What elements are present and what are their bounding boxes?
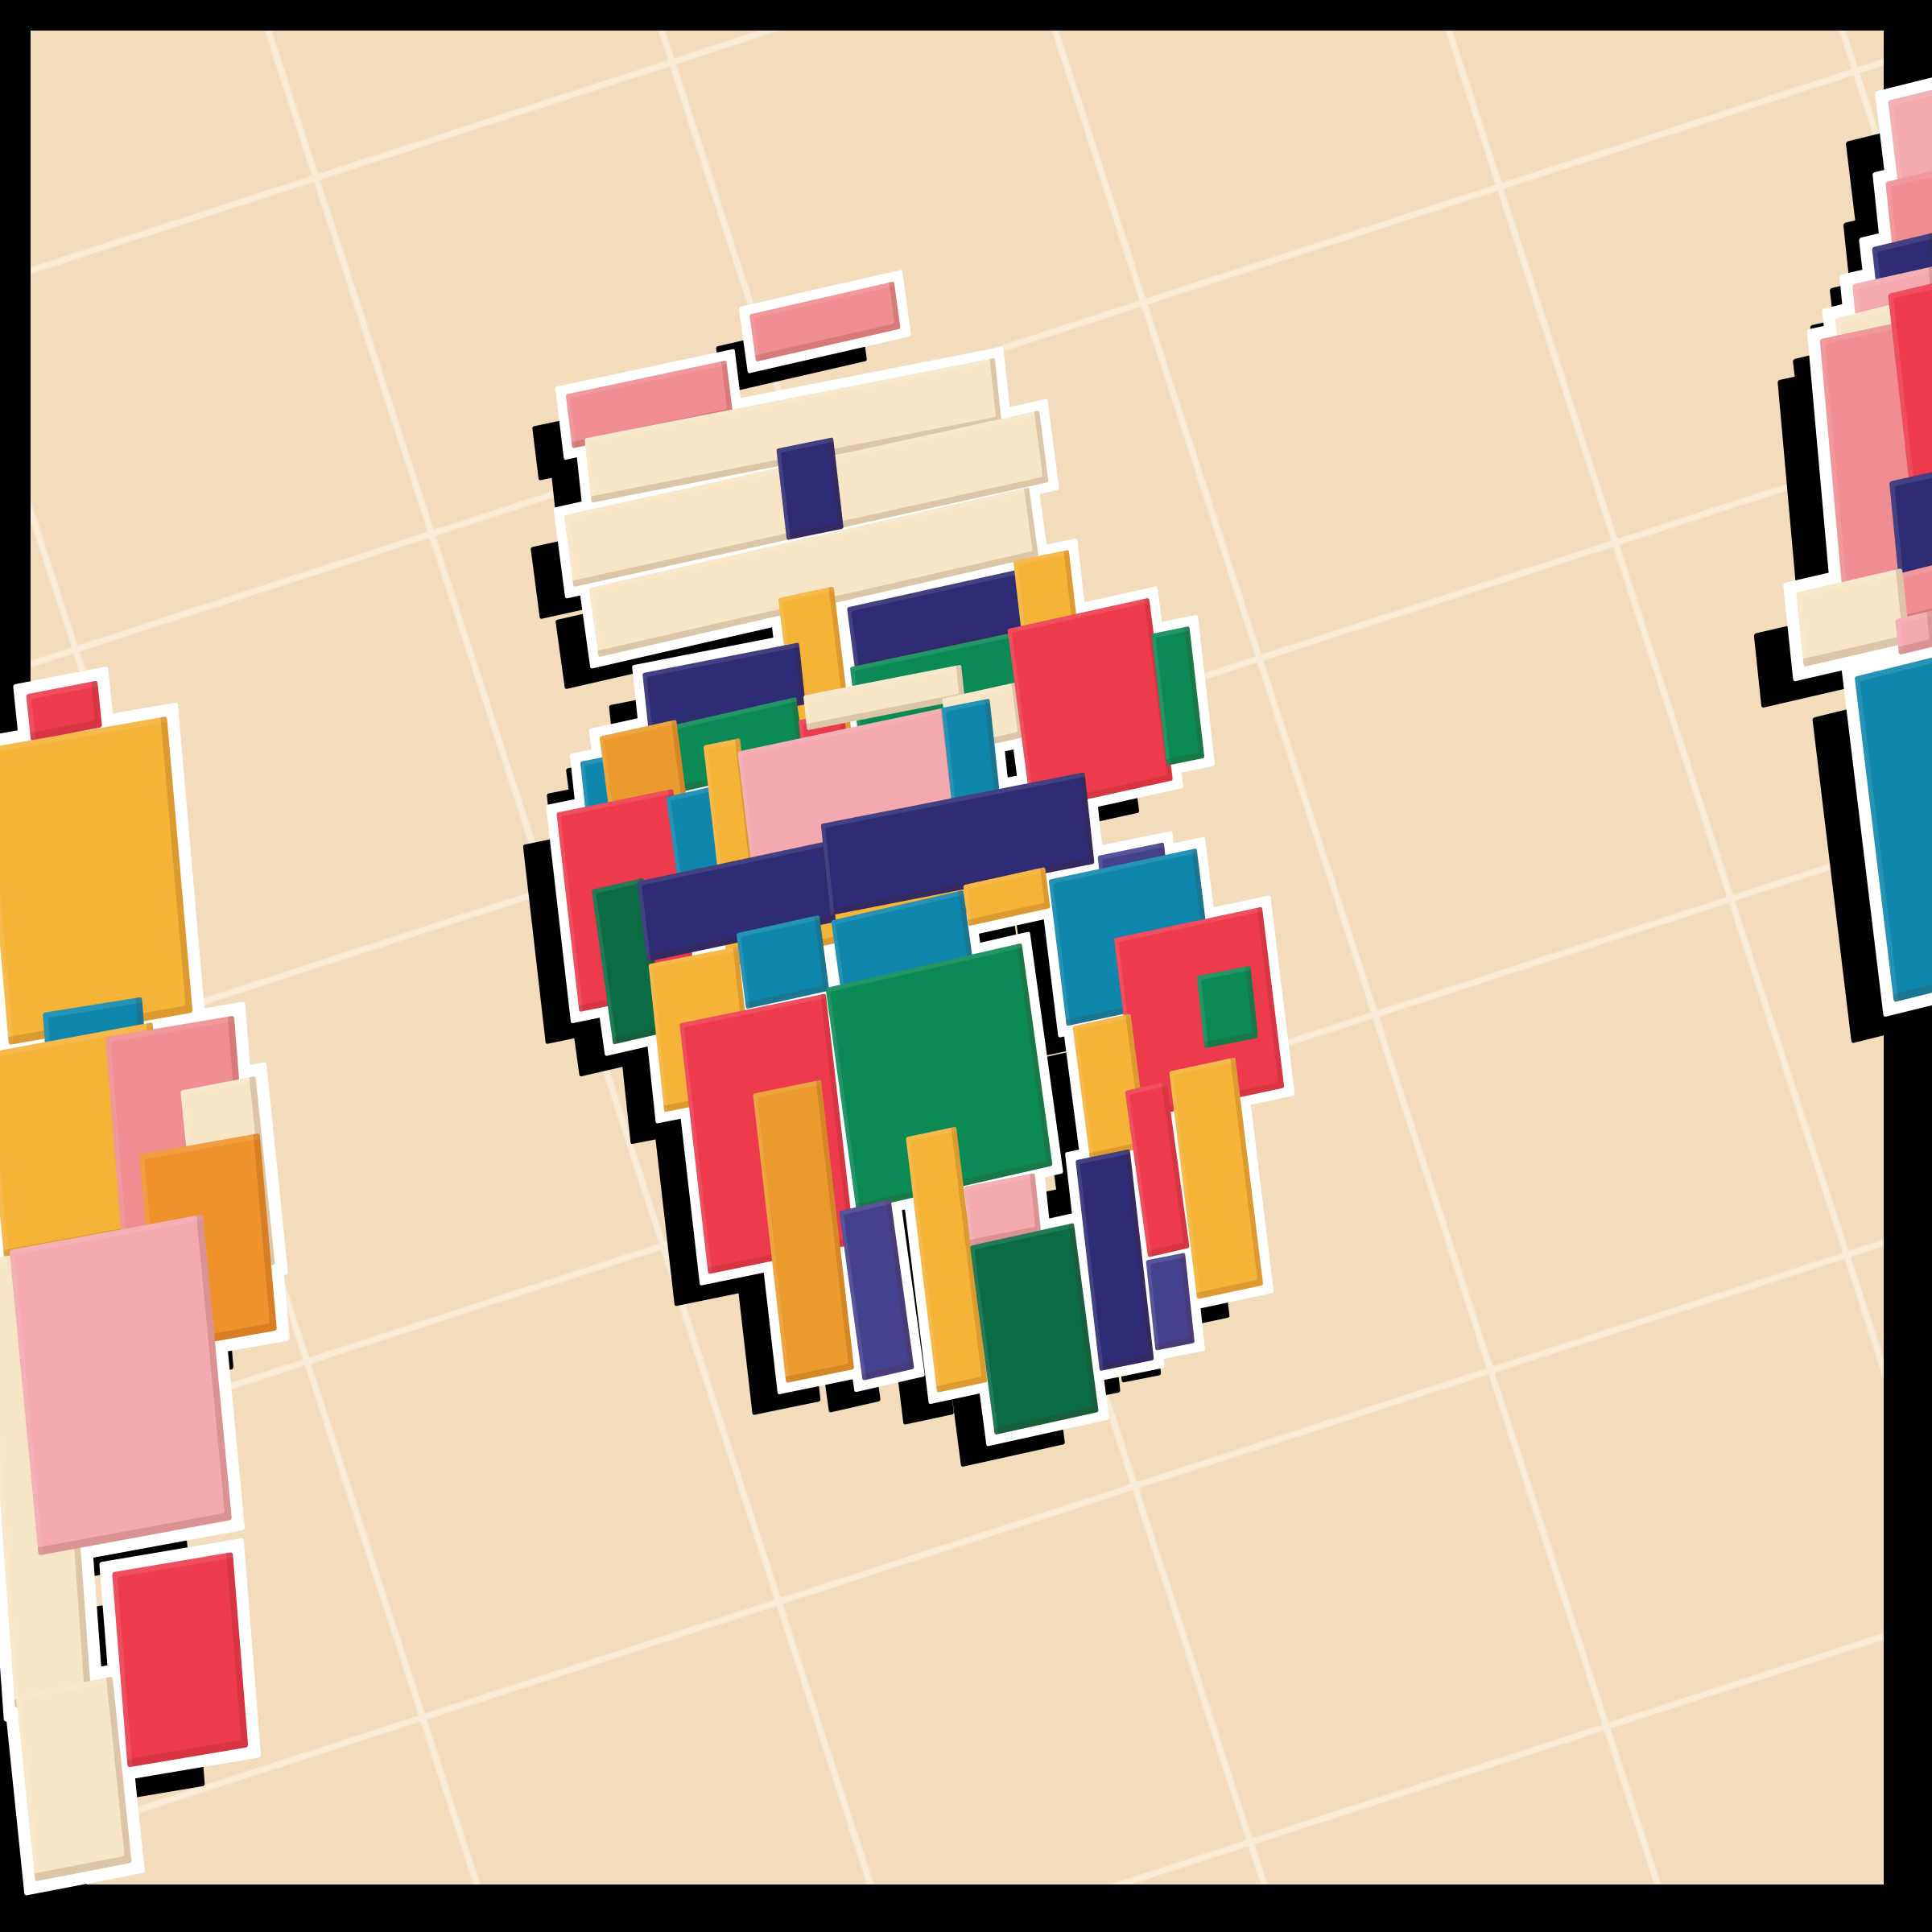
block-green [1197,966,1258,1049]
artwork-page [0,0,1932,1932]
block-cream [16,1677,132,1881]
block-teal [1855,601,1932,1002]
block-red [112,1552,248,1768]
block-yellow [0,716,192,1045]
center-fill-layer [535,228,1271,1322]
figure-center [535,228,1271,1322]
block-cream [1796,568,1909,667]
block-red [1007,598,1173,812]
block-pink [10,1215,232,1556]
block-navy [776,437,844,540]
